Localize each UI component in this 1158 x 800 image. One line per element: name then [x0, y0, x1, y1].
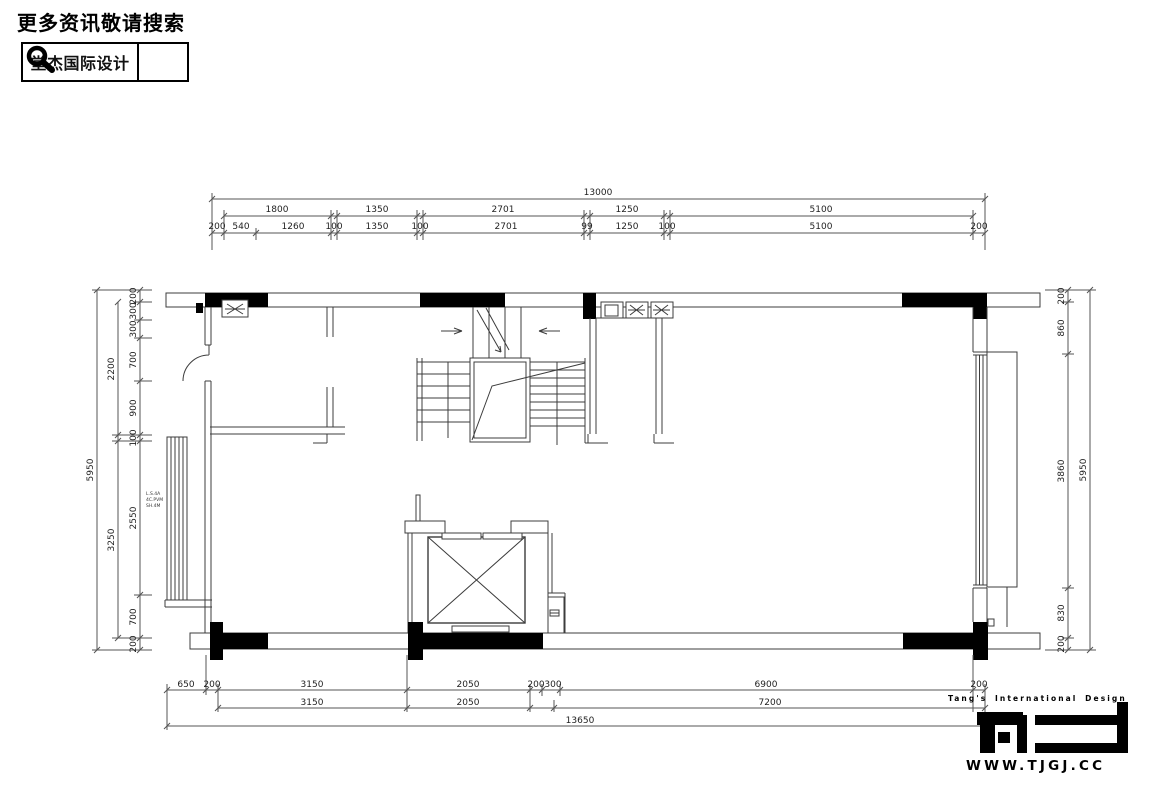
dim-label: 7200 [759, 698, 782, 708]
dim-label: 700 [129, 351, 139, 368]
dim-label: 100 [411, 222, 428, 232]
logo-d-bottom [1035, 743, 1128, 753]
dim-label: 860 [1057, 319, 1067, 336]
dim-label: 2701 [492, 205, 515, 215]
staircase [417, 307, 605, 445]
dim-label: 200 [1057, 287, 1067, 304]
dim-label: 300 [129, 320, 139, 337]
dim-label: 6900 [755, 680, 778, 690]
dim-label: 1350 [366, 222, 389, 232]
dim-label: 200 [129, 635, 139, 652]
dim-label: 200 [970, 680, 987, 690]
dim-label: 200 [208, 222, 225, 232]
dim-label: 3150 [301, 698, 324, 708]
dim-label: 1800 [266, 205, 289, 215]
logo-d-top [1035, 715, 1117, 725]
logo-dot [998, 732, 1010, 743]
left-dimension-lines [92, 287, 152, 653]
dim-label: 300 [544, 680, 561, 690]
dim-label: 200 [527, 680, 544, 690]
dim-label: 5100 [810, 222, 833, 232]
right-wall-window [973, 307, 1017, 627]
dim-label: 100 [658, 222, 675, 232]
window-note-line: 4C.PVM [146, 497, 163, 503]
switch-symbol [196, 303, 203, 313]
kitchen-area [588, 302, 674, 443]
closet-room-walls [183, 300, 345, 607]
dim-label: 1250 [616, 205, 639, 215]
dim-label: 13650 [566, 716, 595, 726]
dim-label: 200 [129, 287, 139, 304]
shaft-cross [428, 537, 525, 623]
dim-label: 650 [177, 680, 194, 690]
dim-label: 830 [1057, 604, 1067, 621]
dim-label: 13000 [584, 188, 613, 198]
dim-label: 5100 [810, 205, 833, 215]
website-url: WWW.TJGJ.CC [966, 758, 1105, 774]
dim-label: 5950 [86, 458, 96, 481]
dim-label: 200 [1057, 635, 1067, 652]
dim-label: 1260 [282, 222, 305, 232]
logo-t-stem [980, 725, 995, 753]
dim-label: 1350 [366, 205, 389, 215]
tjid-logo [975, 700, 1131, 756]
logo-i-bar [1017, 715, 1027, 753]
dim-label: 5950 [1079, 458, 1089, 481]
dim-label: 2050 [457, 698, 480, 708]
dim-label: 200 [970, 222, 987, 232]
dim-label: 700 [129, 608, 139, 625]
dim-label: 900 [129, 399, 139, 416]
bottom-wall [190, 622, 1040, 660]
dim-label: 3150 [301, 680, 324, 690]
window-note-line: L.S.4A [146, 491, 161, 497]
dim-label: 300 [129, 302, 139, 319]
dim-label: 100 [325, 222, 342, 232]
dim-label: 99 [581, 222, 593, 232]
elevator-shaft [405, 495, 565, 633]
dim-label: 2701 [495, 222, 518, 232]
dim-label: 540 [232, 222, 249, 232]
dim-label: 2200 [107, 357, 117, 380]
dim-label: 3860 [1057, 459, 1067, 482]
door-swing-arc [183, 345, 209, 381]
dim-label: 200 [203, 680, 220, 690]
window-note-line: SH.4M [146, 503, 160, 509]
sink-symbol [605, 305, 618, 316]
dim-label: 2050 [457, 680, 480, 690]
dim-label: 2550 [129, 506, 139, 529]
dim-label: 3250 [107, 528, 117, 551]
dim-label: 100 [129, 429, 139, 446]
floor-plan: 13000 1800 1350 2701 1250 5100 200 540 1… [0, 0, 1158, 800]
window-glazing [976, 355, 983, 585]
page: 更多资讯敬请搜索 堂杰国际设计 [0, 0, 1158, 800]
dim-label: 1250 [616, 222, 639, 232]
